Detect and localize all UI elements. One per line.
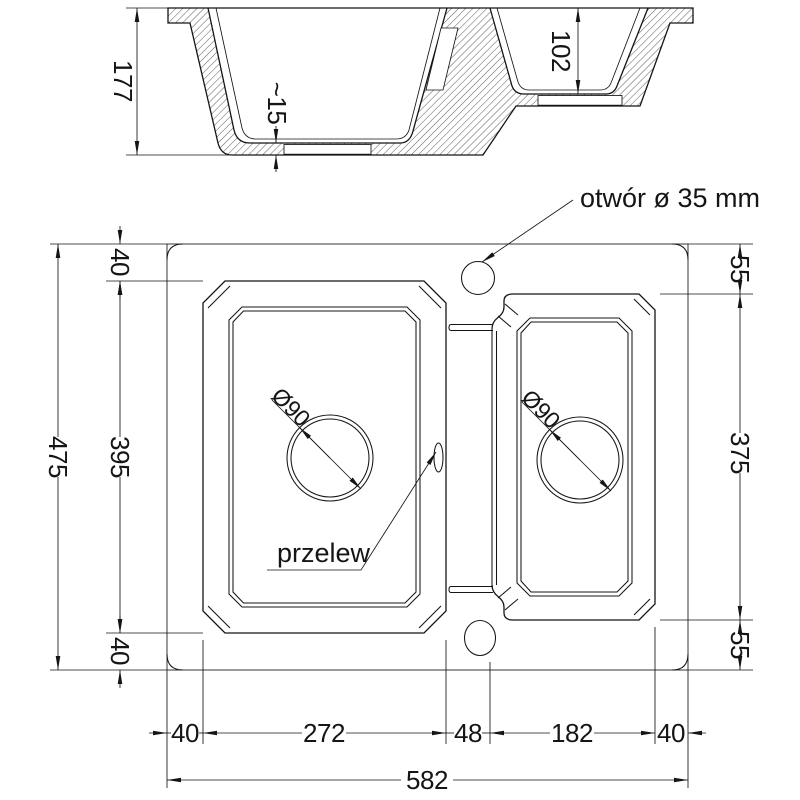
left-drain-label: Ø90 [266, 382, 315, 431]
right-step-brick-b2 [498, 587, 511, 598]
right-bowl-miter-br [634, 599, 650, 615]
hole-callout: otwór ø 35 mm [482, 183, 760, 262]
left-bowl-miter-tl [208, 286, 230, 308]
dim-40-right-label: 40 [657, 718, 685, 748]
left-drain-dia-arrow2 [300, 428, 330, 458]
dimensions-right: 55 375 55 [660, 244, 755, 670]
corner-arc-tl [167, 244, 183, 260]
dim-40-bottom-label: 40 [105, 637, 135, 665]
dimensions-left: 475 40 395 40 [43, 226, 203, 688]
right-drain-label: Ø90 [516, 384, 565, 433]
section-view: 177 ~15 102 [108, 8, 693, 172]
dim-40-left-label: 40 [171, 718, 199, 748]
dim-177-label: 177 [108, 60, 138, 102]
right-drain-dia-arrow2 [550, 430, 580, 460]
overflow-slot [434, 443, 443, 472]
left-bowl-miter-bl [208, 606, 230, 628]
right-bowl-step-top [492, 294, 512, 329]
dim-182-label: 182 [551, 718, 593, 748]
right-step-brick-t1 [505, 304, 518, 315]
plan-view: Ø90 Ø90 [167, 183, 760, 670]
drain-recess-left [284, 145, 371, 155]
hole-label: otwór ø 35 mm [580, 183, 760, 213]
right-bowl-step-bottom [492, 585, 512, 620]
faucet-hole [462, 262, 495, 295]
sink-technical-drawing: 177 ~15 102 Ø90 [0, 0, 800, 800]
dim-395-label: 395 [105, 436, 135, 478]
dim-582-label: 582 [406, 765, 448, 795]
corner-arc-br [672, 654, 688, 670]
dim-272-label: 272 [303, 718, 345, 748]
corner-arc-tr [672, 244, 688, 260]
dim-48-label: 48 [454, 718, 482, 748]
left-bowl-outer-rim [203, 281, 446, 633]
dim-40-top-label: 40 [105, 248, 135, 276]
right-bowl-outer-rim [512, 294, 655, 620]
knob-hole [465, 621, 496, 656]
right-step-brick-t2 [498, 316, 511, 327]
dim-55-top-label: 55 [725, 255, 755, 283]
divider-ledge-bottom [449, 587, 493, 593]
bowl-left-inner-line [216, 8, 440, 139]
right-step-brick-b1 [505, 599, 518, 610]
overflow-label: przelew [277, 538, 371, 568]
corner-arc-bl [167, 654, 183, 670]
left-bowl-miter-tr [419, 286, 441, 308]
right-bowl: Ø90 [449, 294, 655, 620]
dim-55-bottom-label: 55 [725, 631, 755, 659]
right-bowl-inner-rim-1 [517, 318, 632, 596]
hole-leader-line [482, 200, 573, 262]
left-bowl: Ø90 [203, 281, 446, 633]
dim-102-label: 102 [546, 30, 576, 72]
divider-ledge-top [449, 325, 493, 331]
dimensions-bottom: 40 272 48 182 40 582 [149, 627, 706, 795]
drain-recess-right [538, 96, 622, 106]
right-bowl-miter-tr [634, 299, 650, 315]
left-bowl-miter-br [419, 606, 441, 628]
dim-475-label: 475 [43, 436, 73, 478]
dim-375-label: 375 [725, 432, 755, 474]
dim-15-label: ~15 [262, 82, 292, 125]
plan-outline [167, 244, 688, 670]
